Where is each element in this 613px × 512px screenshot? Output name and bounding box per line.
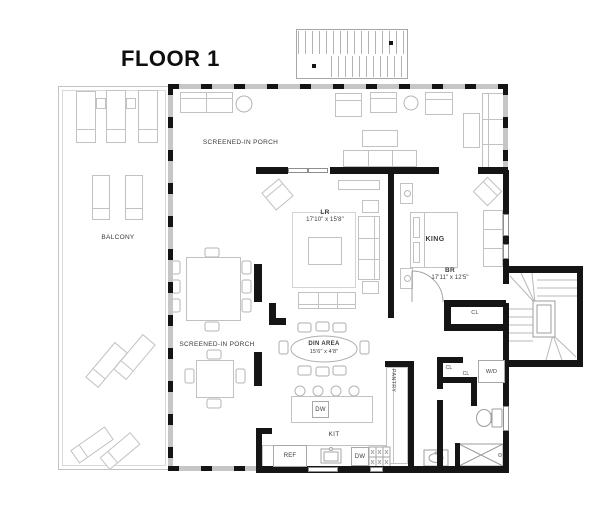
wall-br-south xyxy=(444,300,506,307)
wall-shower-stub xyxy=(455,443,460,467)
wall-stub xyxy=(254,264,262,302)
label-bedroom: BR 17'11" x 12'5" xyxy=(418,267,482,283)
label-living-room: LR 17'10" x 15'8" xyxy=(294,209,356,225)
porch-round-table xyxy=(404,96,418,110)
label-porch-left: SCREENED-IN PORCH xyxy=(153,341,281,349)
wall-bath-west xyxy=(437,400,443,473)
screen-wall-bottom-porch xyxy=(168,466,260,471)
living-room-dims: 17'10" x 15'8" xyxy=(294,217,356,225)
label-porch-top: SCREENED-IN PORCH xyxy=(178,139,303,147)
toilet xyxy=(477,409,503,427)
island-stools xyxy=(295,386,359,396)
label-pantry: PANTRY xyxy=(390,369,396,392)
bedroom-dims: 17'11" x 12'5" xyxy=(418,275,482,283)
screen-wall-left xyxy=(168,84,173,471)
wall-stub xyxy=(269,318,286,325)
kitchen-sink xyxy=(321,448,341,464)
screen-wall-right-upper xyxy=(503,84,508,173)
wall xyxy=(330,167,439,174)
label-closet-bedroom: CL xyxy=(462,310,488,316)
porch-round-table xyxy=(236,96,252,112)
window xyxy=(503,406,509,431)
wall-stub xyxy=(254,352,262,386)
bedroom-abbr: BR xyxy=(418,267,482,275)
refrigerator: REF xyxy=(273,445,307,467)
sliding-door-panel xyxy=(308,168,328,173)
window xyxy=(308,467,338,472)
winder-staircase xyxy=(509,273,577,360)
label-kitchen: KIT xyxy=(320,431,348,439)
label-balcony: BALCONY xyxy=(86,234,150,242)
label-closet-hall-1: CL xyxy=(441,365,457,371)
wall-pantry-top xyxy=(385,361,414,367)
screen-wall-top xyxy=(168,84,508,89)
window xyxy=(370,467,383,472)
washer-dryer: W/D xyxy=(478,360,505,383)
label-dining: DIN AREA 15'6" x 4'8" xyxy=(291,341,357,355)
label-closet-hall-2: CL xyxy=(458,371,474,377)
wall-stair-top xyxy=(509,266,583,273)
wall-stair-right xyxy=(577,266,583,367)
wall xyxy=(256,167,288,174)
wall-closet-cluster xyxy=(471,377,477,406)
wall-closet-cluster xyxy=(437,357,443,389)
shower xyxy=(459,444,503,466)
living-room-abbr: LR xyxy=(294,209,356,217)
window xyxy=(503,214,509,236)
sliding-door-panel xyxy=(288,168,308,173)
range-grid xyxy=(369,447,390,467)
wall-closet xyxy=(444,324,506,331)
dishwasher-island: DW xyxy=(312,401,329,418)
wall-stair-bottom xyxy=(509,360,583,367)
wall-pantry-east xyxy=(408,361,414,473)
dining-abbr: DIN AREA xyxy=(291,341,357,349)
wall-lr-br-divider xyxy=(388,170,394,318)
porch-square-table-chairs xyxy=(185,350,245,408)
floor-plan-canvas: FLOOR 1 xyxy=(0,0,613,512)
label-king-bed: KING xyxy=(412,236,458,245)
window xyxy=(503,244,509,259)
bathroom-sink xyxy=(424,450,448,466)
dining-dims: 15'6" x 4'8" xyxy=(291,349,357,356)
porch-long-table-chairs xyxy=(171,248,251,331)
plan-vector-overlay xyxy=(0,0,613,512)
dishwasher-counter: DW xyxy=(351,447,369,466)
